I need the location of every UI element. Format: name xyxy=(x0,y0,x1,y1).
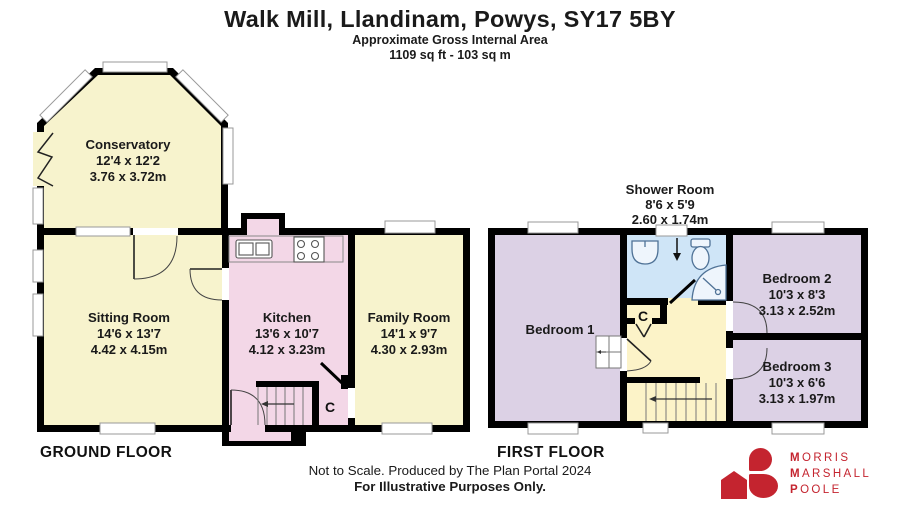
house-icon xyxy=(721,471,747,499)
rear-door-opening xyxy=(247,228,279,236)
window xyxy=(33,294,43,336)
agency-logo-text: MORRIS MARSHALL POOLE xyxy=(790,450,871,498)
logo-leaf-shape xyxy=(749,474,778,498)
door-opening xyxy=(222,268,229,300)
family-room-label: Family Room xyxy=(368,310,451,325)
shower-room-metric: 2.60 x 1.74m xyxy=(632,212,709,227)
rear-porch-floor xyxy=(247,219,279,228)
family-room-imperial: 14'1 x 9'7 xyxy=(381,326,438,341)
window xyxy=(103,62,167,72)
bedroom3-metric: 3.13 x 1.97m xyxy=(759,391,836,406)
cupboard-wall-stub xyxy=(627,318,635,324)
conservatory-label: Conservatory xyxy=(85,137,171,152)
ground-floor-title: GROUND FLOOR xyxy=(40,444,172,461)
bedroom2-3-wall xyxy=(726,333,861,340)
door-opening xyxy=(133,228,178,235)
hob-icon xyxy=(294,237,324,262)
ground-floor-plan: Conservatory 12'4 x 12'2 3.76 x 3.72m Si… xyxy=(33,62,470,446)
shower-room-imperial: 8'6 x 5'9 xyxy=(645,197,695,212)
toilet-icon xyxy=(691,239,710,270)
first-floor-title: FIRST FLOOR xyxy=(497,444,605,461)
kitchen-metric: 4.12 x 3.23m xyxy=(249,342,326,357)
door-opening xyxy=(348,388,355,418)
kitchen-imperial: 13'6 x 10'7 xyxy=(255,326,319,341)
window xyxy=(643,423,668,433)
logo-word-poole: POOLE xyxy=(790,482,871,498)
bedroom3-imperial: 10'3 x 6'6 xyxy=(769,375,826,390)
sitting-room-imperial: 14'6 x 13'7 xyxy=(97,326,161,341)
window xyxy=(76,227,130,236)
shower-room-label: Shower Room xyxy=(626,182,715,197)
bedroom2-metric: 3.13 x 2.52m xyxy=(759,303,836,318)
door-opening xyxy=(726,301,733,331)
cupboard-label-ground: C xyxy=(325,399,335,415)
wardrobe-icon xyxy=(596,336,621,368)
sitting-room-metric: 4.42 x 4.15m xyxy=(91,342,168,357)
bedroom2-label: Bedroom 2 xyxy=(763,271,832,286)
family-room-metric: 4.30 x 2.93m xyxy=(371,342,448,357)
bedroom3-label: Bedroom 3 xyxy=(763,359,832,374)
sink-icon xyxy=(236,240,272,258)
front-porch-floor xyxy=(229,432,291,441)
window xyxy=(385,221,435,233)
conservatory-metric: 3.76 x 3.72m xyxy=(90,169,167,184)
window xyxy=(33,250,43,282)
door-opening xyxy=(726,348,733,379)
window xyxy=(528,423,578,434)
logo-word-marshall: MARSHALL xyxy=(790,466,871,482)
agency-logo: MORRIS MARSHALL POOLE xyxy=(721,446,891,502)
front-door-opening xyxy=(231,425,265,433)
sink-icon xyxy=(632,241,658,264)
kitchen-label: Kitchen xyxy=(263,310,311,325)
logo-drop-shape xyxy=(749,448,772,471)
floorplan-drawing: Conservatory 12'4 x 12'2 3.76 x 3.72m Si… xyxy=(0,0,900,506)
window xyxy=(772,222,824,233)
bedroom1-label: Bedroom 1 xyxy=(526,322,595,337)
window xyxy=(772,423,824,434)
sitting-room-label: Sitting Room xyxy=(88,310,170,325)
window xyxy=(382,423,432,434)
bedroom2-imperial: 10'3 x 8'3 xyxy=(769,287,826,302)
window xyxy=(100,423,155,434)
window xyxy=(528,222,578,233)
agency-logo-icon xyxy=(721,447,779,501)
window xyxy=(223,128,233,184)
floorplan-page: Walk Mill, Llandinam, Powys, SY17 5BY Ap… xyxy=(0,0,900,506)
conservatory-imperial: 12'4 x 12'2 xyxy=(96,153,160,168)
window xyxy=(33,188,43,224)
logo-word-morris: MORRIS xyxy=(790,450,871,466)
cupboard-label-first: C xyxy=(638,308,648,324)
first-floor-plan: Shower Room 8'6 x 5'9 2.60 x 1.74m Bedro… xyxy=(488,182,868,434)
cupboard-wall-stub xyxy=(652,318,667,324)
